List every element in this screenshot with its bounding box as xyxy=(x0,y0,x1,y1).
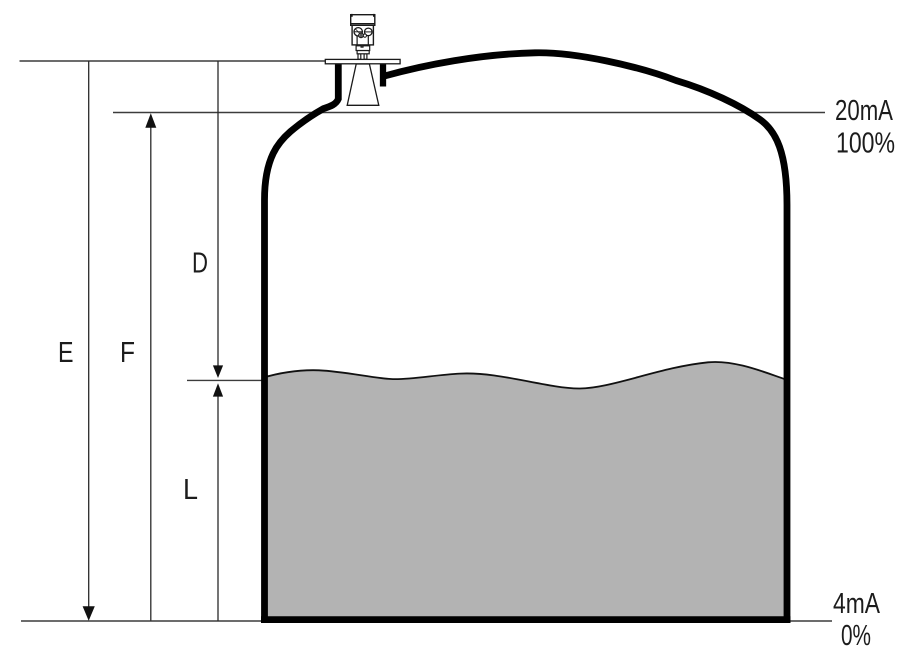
svg-text:L: L xyxy=(183,474,198,506)
svg-text:4mA: 4mA xyxy=(833,588,881,620)
svg-text:D: D xyxy=(192,248,208,280)
svg-text:100%: 100% xyxy=(836,128,895,160)
svg-text:20mA: 20mA xyxy=(835,95,893,127)
svg-text:E: E xyxy=(58,337,74,369)
svg-text:F: F xyxy=(120,337,135,369)
svg-text:0%: 0% xyxy=(841,620,871,652)
